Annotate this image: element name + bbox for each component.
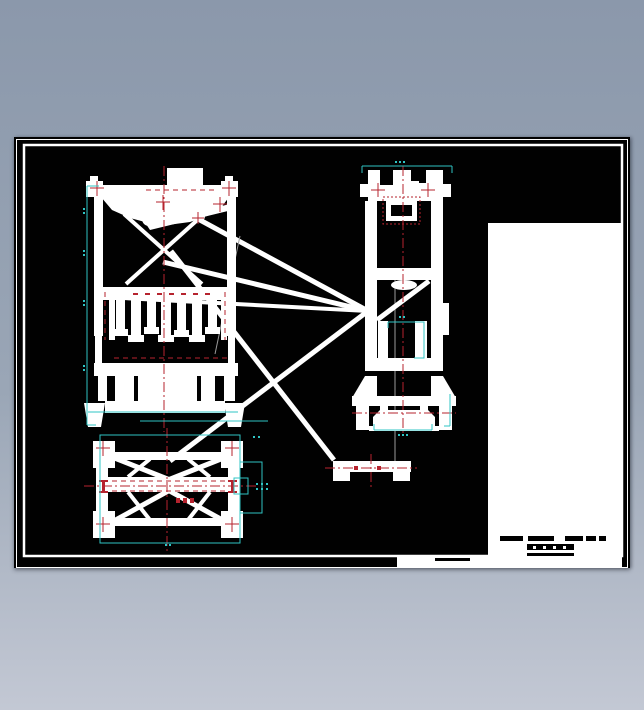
title-text-row-1 [500, 536, 606, 541]
detail-part [333, 461, 411, 481]
cad-viewer-background [0, 0, 644, 710]
hidden-hole-detail [383, 197, 420, 224]
drawing-canvas[interactable] [14, 137, 630, 568]
title-text-row-2 [527, 544, 574, 550]
title-text-row-3 [527, 553, 574, 556]
plan-view [93, 441, 243, 538]
side-view [352, 170, 456, 431]
